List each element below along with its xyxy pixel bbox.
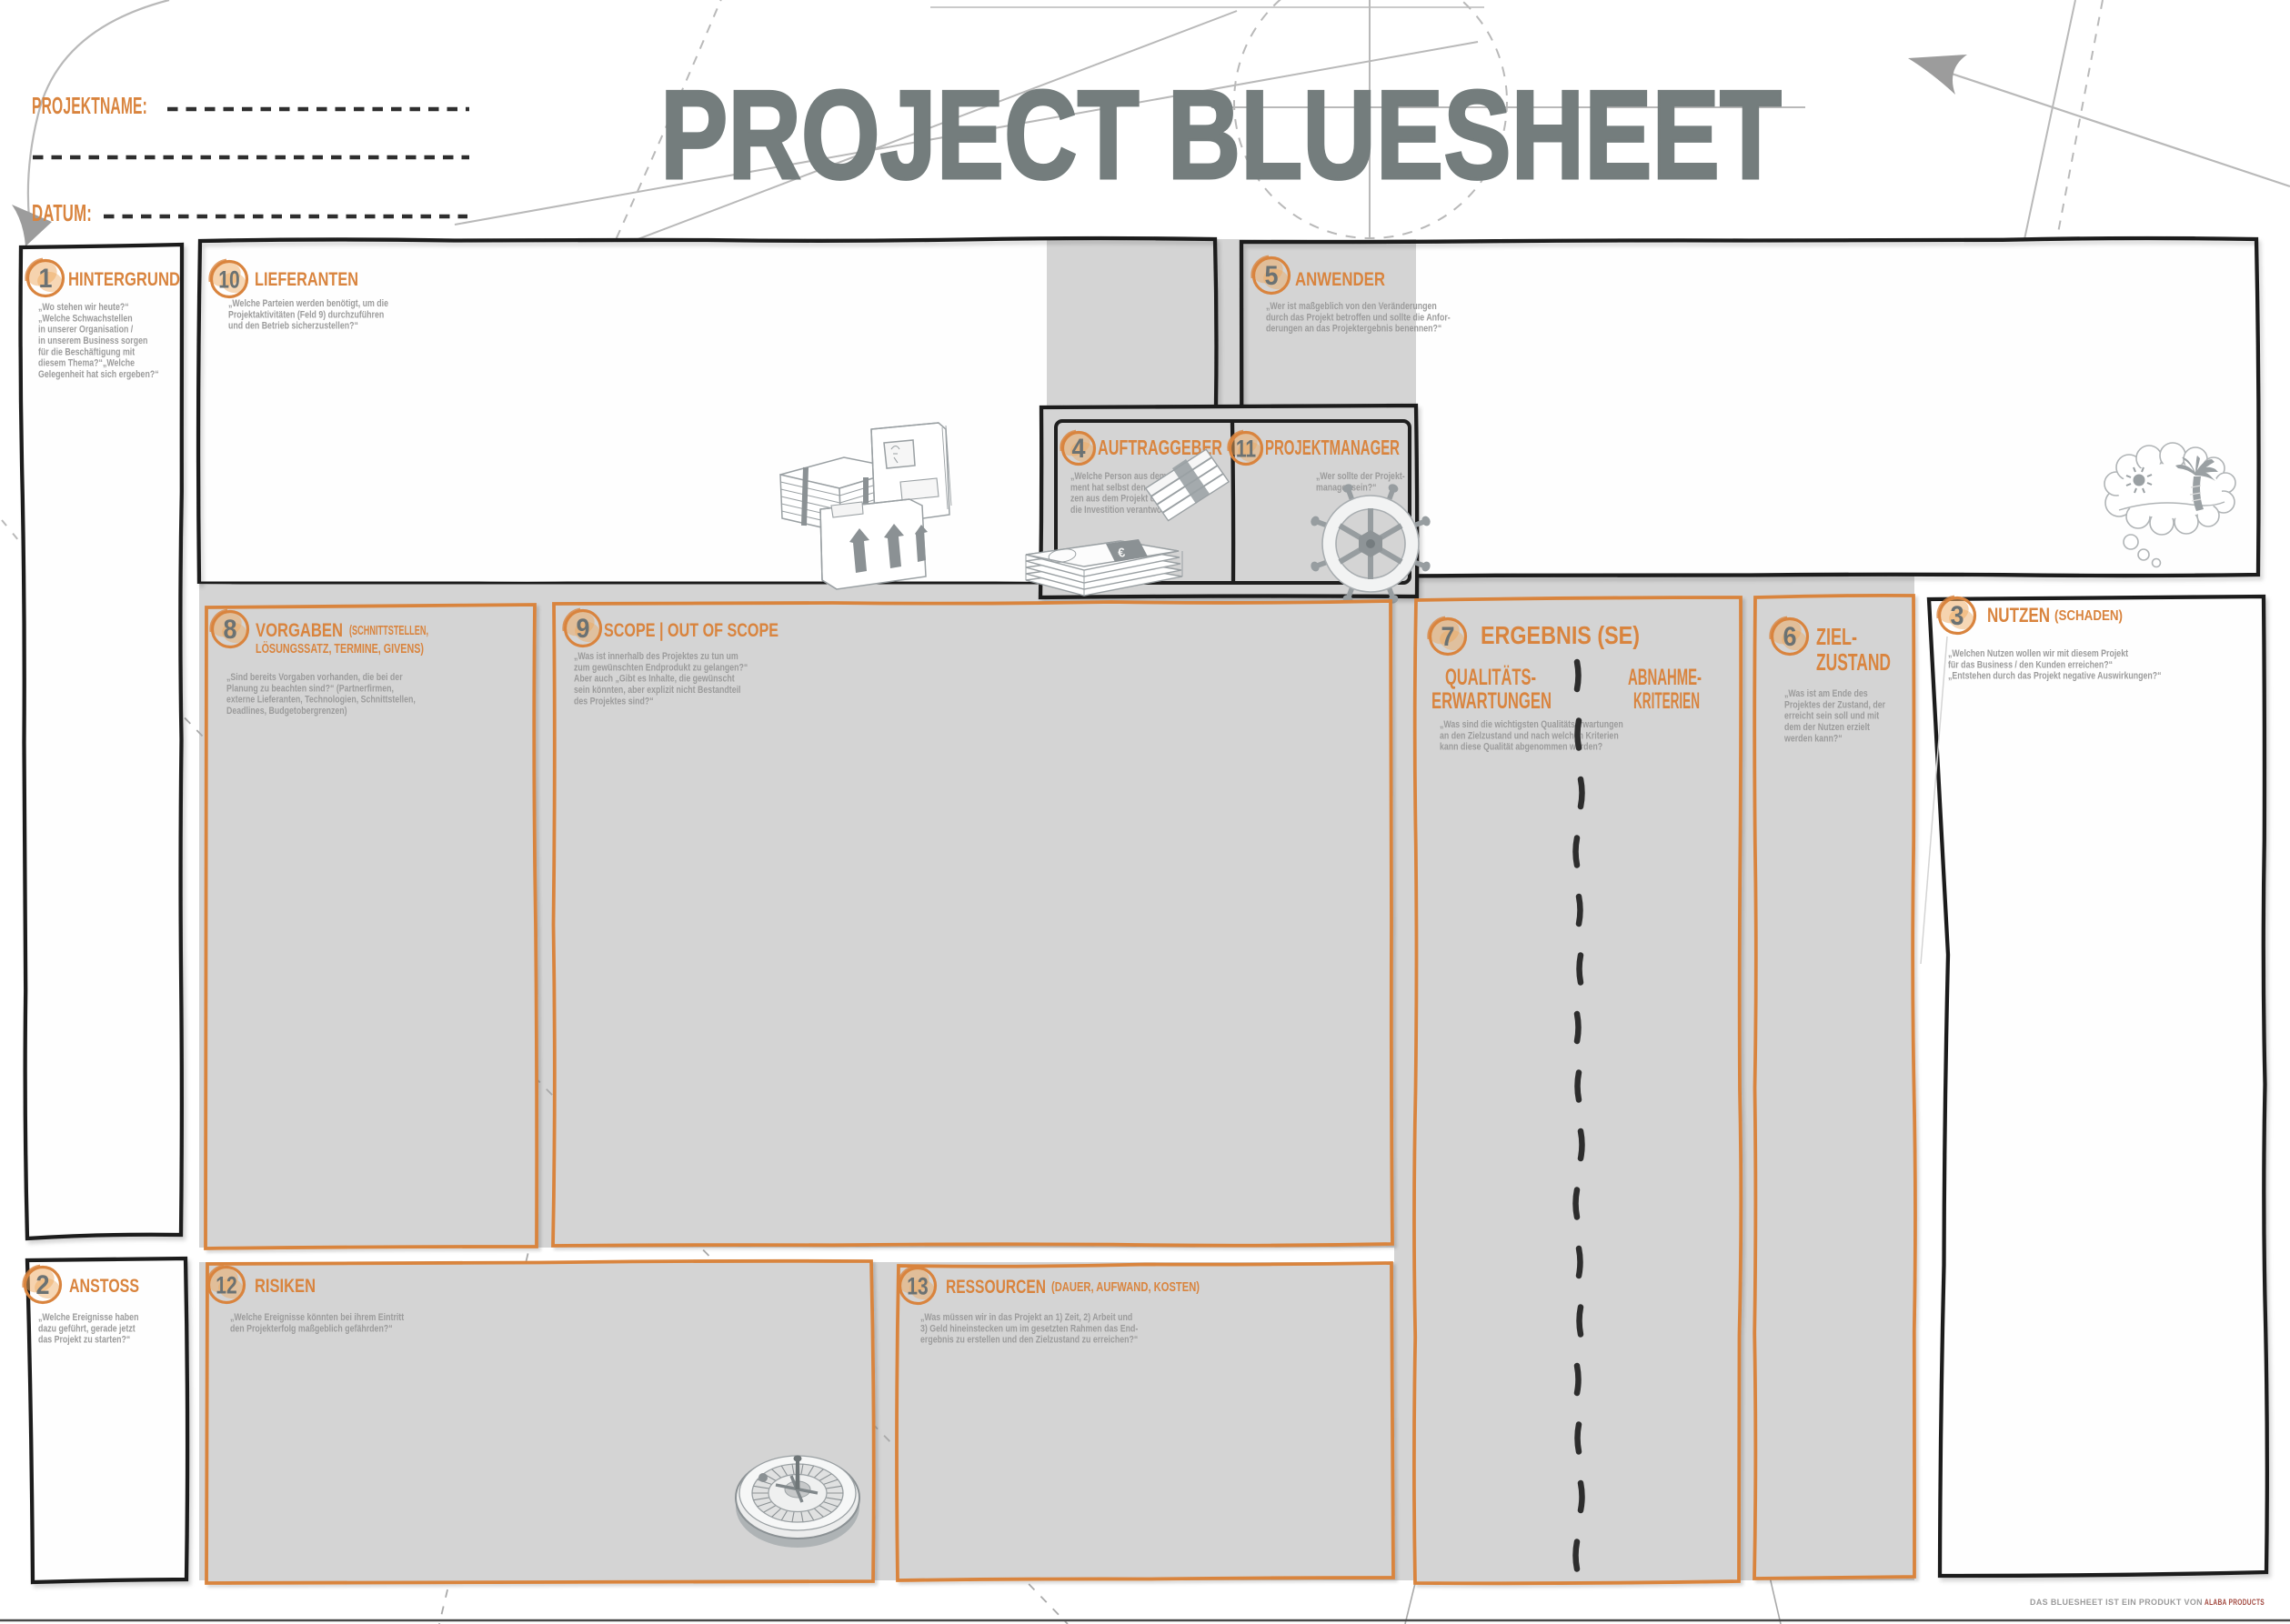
svg-text:Aber auch „Gibt es Inhalte, di: Aber auch „Gibt es Inhalte, die gewünsch… [574, 674, 735, 685]
svg-text:PROJEKTNAME:: PROJEKTNAME: [32, 94, 147, 119]
svg-text:„Welche Schwachstellen: „Welche Schwachstellen [38, 313, 133, 324]
svg-text:zum gewünschten Endprodukt zu: zum gewünschten Endprodukt zu gelangen?“ [574, 662, 748, 673]
svg-text:13: 13 [907, 1273, 928, 1300]
svg-text:SCOPE | OUT OF SCOPE: SCOPE | OUT OF SCOPE [604, 619, 778, 641]
svg-text:Projektes der Zustand, der: Projektes der Zustand, der [1784, 699, 1885, 710]
svg-text:sein könnten, aber explizit ni: sein könnten, aber explizit nicht Bestan… [574, 685, 741, 696]
svg-text:den Projekterfolg maßgeblich g: den Projekterfolg maßgeblich gefährden?“ [230, 1323, 393, 1334]
svg-text:11: 11 [1236, 436, 1256, 463]
svg-text:derungen an das Projektergebni: derungen an das Projektergebnis benennen… [1266, 324, 1441, 335]
svg-text:8: 8 [223, 615, 236, 646]
svg-text:„Was ist am Ende des: „Was ist am Ende des [1784, 688, 1868, 699]
svg-text:5: 5 [1264, 261, 1278, 292]
svg-text:„Welche Ereignisse könnten bei: „Welche Ereignisse könnten bei ihrem Ein… [230, 1312, 405, 1323]
svg-text:DAS BLUESHEET IST EIN PRODUKT: DAS BLUESHEET IST EIN PRODUKT VON [2030, 1598, 2203, 1608]
svg-text:diesem Thema?“„Welche: diesem Thema?“„Welche [38, 358, 135, 369]
svg-text:dazu geführt, gerade jetzt: dazu geführt, gerade jetzt [38, 1323, 136, 1334]
svg-text:2: 2 [35, 1270, 49, 1301]
svg-text:Gelegenheit hat sich ergeben?“: Gelegenheit hat sich ergeben?“ [38, 369, 159, 380]
svg-text:„Welche Ereignisse haben: „Welche Ereignisse haben [38, 1312, 138, 1323]
svg-text:„Wer sollte der Projekt-: „Wer sollte der Projekt- [1316, 471, 1405, 482]
svg-text:für das Business / den Kunden: für das Business / den Kunden erreichen?… [1948, 659, 2113, 670]
svg-text:12: 12 [216, 1272, 236, 1299]
svg-text:1: 1 [38, 264, 52, 295]
svg-text:ergebnis zu erstellen und den: ergebnis zu erstellen und den Zielzustan… [920, 1335, 1138, 1346]
svg-text:das Projekt zu starten?“: das Projekt zu starten?“ [38, 1335, 130, 1346]
svg-text:3: 3 [1950, 601, 1964, 632]
svg-text:„Wo stehen wir heute?“: „Wo stehen wir heute?“ [38, 302, 129, 313]
svg-text:„Was müssen wir in das Projekt: „Was müssen wir in das Projekt an 1) Zei… [920, 1312, 1132, 1323]
svg-text:10: 10 [218, 266, 239, 294]
svg-text:externe Lieferanten, Technolog: externe Lieferanten, Technologien, Schni… [226, 695, 416, 706]
svg-text:4: 4 [1071, 434, 1085, 465]
svg-text:(SCHNITTSTELLEN,: (SCHNITTSTELLEN, [349, 624, 428, 638]
svg-text:3) Geld hineinstecken um im ge: 3) Geld hineinstecken um im gesetzten Ra… [920, 1323, 1138, 1334]
svg-text:6: 6 [1783, 622, 1796, 653]
svg-text:ANSTOSS: ANSTOSS [69, 1275, 139, 1297]
svg-text:7: 7 [1441, 622, 1454, 653]
svg-text:DATUM:: DATUM: [32, 201, 92, 226]
svg-text:an den Zielzustand und nach we: an den Zielzustand und nach welchen Krit… [1440, 730, 1619, 741]
svg-text:in unserem Business sorgen: in unserem Business sorgen [38, 336, 147, 346]
svg-text:Deadlines, Budgetobergrenzen): Deadlines, Budgetobergrenzen) [226, 706, 347, 717]
svg-text:LÖSUNGSSATZ, TERMINE, GIVENS): LÖSUNGSSATZ, TERMINE, GIVENS) [256, 641, 424, 657]
svg-text:werden kann?“: werden kann?“ [1783, 733, 1842, 744]
svg-text:ABNAHME-: ABNAHME- [1628, 665, 1702, 690]
svg-text:RISIKEN: RISIKEN [255, 1275, 316, 1297]
svg-text:RESSOURCEN: RESSOURCEN [946, 1276, 1046, 1298]
svg-text:ZUSTAND: ZUSTAND [1816, 648, 1891, 676]
svg-text:KRITERIEN: KRITERIEN [1633, 688, 1700, 714]
svg-text:und den Betrieb sicherzustelle: und den Betrieb sicherzustellen?“ [228, 321, 358, 332]
svg-text:Planung zu beachten sind?“ (Pa: Planung zu beachten sind?“ (Partnerfirme… [226, 683, 394, 694]
svg-text:für die Beschäftigung mit: für die Beschäftigung mit [38, 346, 136, 357]
svg-text:in unserer Organisation /: in unserer Organisation / [38, 325, 133, 336]
svg-text:(SCHADEN): (SCHADEN) [2054, 608, 2123, 624]
svg-text:dem der Nutzen erzielt: dem der Nutzen erzielt [1784, 722, 1871, 733]
svg-text:„Was ist innerhalb des Projekt: „Was ist innerhalb des Projektes zu tun … [574, 651, 738, 662]
svg-text:„Welche Parteien werden benöti: „Welche Parteien werden benötigt, um die [228, 298, 388, 309]
svg-text:HINTERGRUND: HINTERGRUND [68, 268, 180, 290]
svg-text:VORGABEN: VORGABEN [256, 619, 343, 641]
svg-text:LIEFERANTEN: LIEFERANTEN [255, 268, 358, 290]
svg-text:ERWARTUNGEN: ERWARTUNGEN [1431, 688, 1552, 714]
svg-text:QUALITÄTS-: QUALITÄTS- [1445, 665, 1536, 690]
svg-text:(DAUER, AUFWAND, KOSTEN): (DAUER, AUFWAND, KOSTEN) [1051, 1280, 1200, 1295]
svg-text:NUTZEN: NUTZEN [1987, 604, 2050, 627]
svg-text:ANWENDER: ANWENDER [1295, 268, 1385, 290]
svg-text:PROJECT BLUESHEET: PROJECT BLUESHEET [660, 65, 1782, 206]
svg-text:ERGEBNIS (SE): ERGEBNIS (SE) [1481, 621, 1640, 649]
svg-text:„Wer ist maßgeblich von den Ve: „Wer ist maßgeblich von den Veränderunge… [1266, 301, 1437, 312]
svg-text:Projektaktivitäten (Feld 9) du: Projektaktivitäten (Feld 9) durchzuführe… [228, 309, 384, 320]
svg-text:„Was sind die wichtigsten Qual: „Was sind die wichtigsten Qualitätserwar… [1440, 719, 1623, 730]
svg-text:9: 9 [576, 614, 589, 645]
svg-text:ZIEL-: ZIEL- [1816, 623, 1857, 650]
svg-text:des Projektes sind?“: des Projektes sind?“ [574, 696, 654, 707]
svg-text:„Entstehen durch das Projekt n: „Entstehen durch das Projekt negative Au… [1948, 671, 2162, 682]
svg-text:PROJEKTMANAGER: PROJEKTMANAGER [1265, 436, 1400, 459]
svg-text:erreicht sein soll und mit: erreicht sein soll und mit [1784, 711, 1880, 722]
svg-text:„Sind bereits Vorgaben vorhand: „Sind bereits Vorgaben vorhanden, die be… [226, 672, 403, 683]
svg-text:durch das Projekt betroffen un: durch das Projekt betroffen und sollte d… [1266, 312, 1451, 323]
svg-text:„Welchen Nutzen wollen wir mit: „Welchen Nutzen wollen wir mit diesem Pr… [1948, 648, 2129, 659]
svg-text:ALABA PRODUCTS: ALABA PRODUCTS [2205, 1598, 2265, 1608]
